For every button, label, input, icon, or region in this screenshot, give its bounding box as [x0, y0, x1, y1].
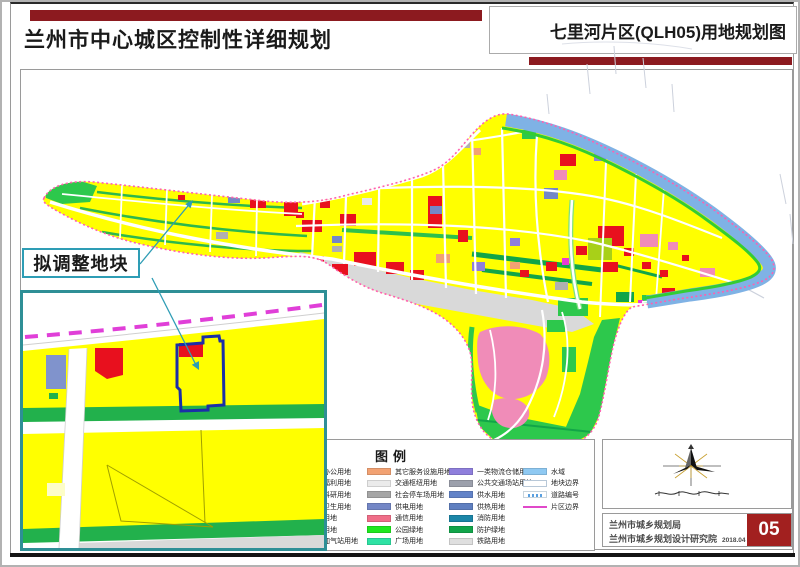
north-arrow-icon: [663, 444, 721, 486]
legend-column-3: 一类物流仓储用地 公共交通场站用地 供水用地 供热用地 消防用地 防护绿地 铁路…: [449, 466, 533, 547]
legend-item: 地块边界: [523, 478, 579, 490]
legend-swatch: [367, 503, 391, 510]
legend-swatch: [449, 480, 473, 487]
map-title: 七里河片区(QLH05)用地规划图: [550, 18, 786, 43]
legend-swatch: [449, 491, 473, 498]
legend-column-4: 水域 地块边界 道路编号 片区边界: [523, 466, 579, 512]
legend-item: 消防用地: [449, 512, 533, 524]
legend-item: 其它服务设施用地: [367, 466, 451, 478]
institute-name: 兰州市城乡规划设计研究院2018.04: [609, 532, 746, 545]
legend-swatch: [367, 480, 391, 487]
legend-item: 一类物流仓储用地: [449, 466, 533, 478]
agency-name: 兰州市城乡规划局: [609, 518, 681, 531]
inset-plot-outline: [177, 336, 224, 411]
title-block: 兰州市城乡规划局 兰州市城乡规划设计研究院2018.04 05: [602, 513, 792, 547]
legend-item: 公园绿地: [367, 524, 451, 536]
legend-swatch-road-number: [523, 491, 547, 498]
legend-swatch: [367, 538, 391, 545]
legend-swatch: [449, 538, 473, 545]
map-title-box: 七里河片区(QLH05)用地规划图: [489, 6, 797, 54]
sheet-bottom-rule: [10, 553, 795, 557]
legend-item: 水域: [523, 466, 579, 478]
legend-swatch: [367, 468, 391, 475]
legend-item: 防护绿地: [449, 524, 533, 536]
legend-swatch: [449, 503, 473, 510]
compass-rose-and-scale: [603, 440, 791, 508]
inset-map-drawing: [23, 293, 324, 548]
inset-detail-map: [20, 290, 327, 551]
legend-item: 社会停车场用地: [367, 489, 451, 501]
plan-sheet: 兰州市中心城区控制性详细规划 七里河片区(QLH05)用地规划图 图例 行政办公…: [0, 0, 800, 567]
callout-adjust-plot: 拟调整地块: [22, 248, 140, 278]
legend-item: 公共交通场站用地: [449, 478, 533, 490]
legend-swatch-district-boundary: [523, 503, 547, 510]
legend-item: 片区边界: [523, 501, 579, 513]
legend-swatch: [449, 526, 473, 533]
compass-box: [602, 439, 792, 509]
legend-item: 供水用地: [449, 489, 533, 501]
legend-item: 道路编号: [523, 489, 579, 501]
legend-item: 通信用地: [367, 512, 451, 524]
legend-swatch: [449, 468, 473, 475]
header-accent-bar-left: [30, 10, 482, 21]
legend-item: 供热用地: [449, 501, 533, 513]
legend-item: 铁路用地: [449, 536, 533, 548]
scale-bar: [655, 492, 729, 495]
legend-swatch-water: [523, 468, 547, 475]
legend-item: 供电用地: [367, 501, 451, 513]
header-accent-bar-right: [529, 57, 792, 65]
plan-date: 2018.04: [722, 537, 746, 544]
legend-item: 广场用地: [367, 536, 451, 548]
legend-title: 图例: [375, 446, 411, 465]
legend-swatch: [449, 515, 473, 522]
legend-item: 交通枢纽用地: [367, 478, 451, 490]
legend-swatch: [367, 491, 391, 498]
sheet-number-badge: 05: [747, 514, 791, 546]
legend-swatch: [367, 526, 391, 533]
legend-swatch-plot-boundary: [523, 480, 547, 487]
plan-title: 兰州市中心城区控制性详细规划: [24, 24, 332, 54]
legend-swatch: [367, 515, 391, 522]
legend-column-2: 其它服务设施用地 交通枢纽用地 社会停车场用地 供电用地 通信用地 公园绿地 广…: [367, 466, 451, 547]
